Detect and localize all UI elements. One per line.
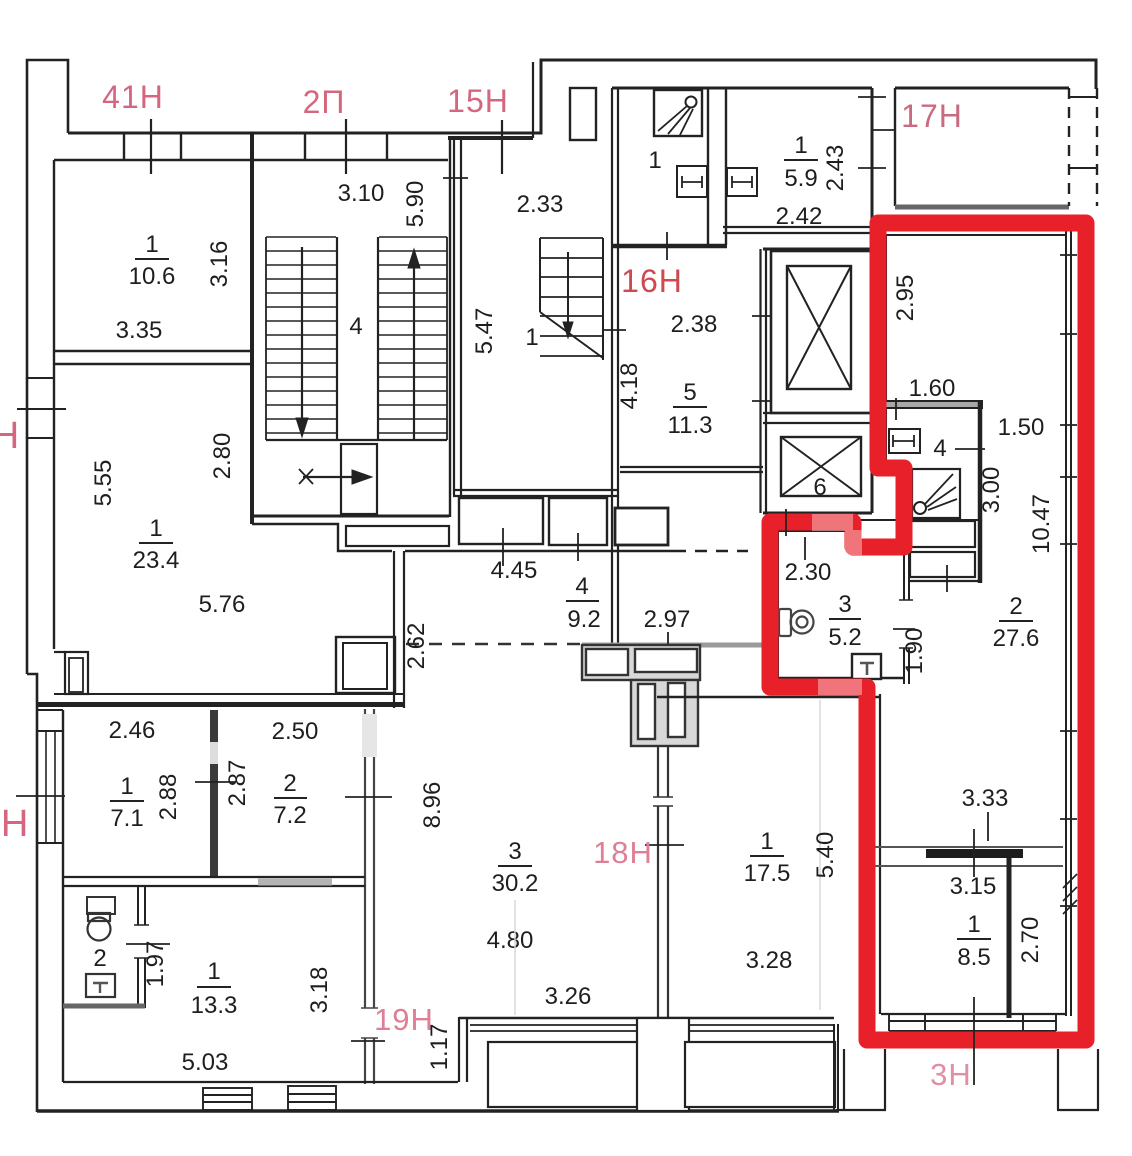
svg-text:1.97: 1.97 <box>142 941 169 988</box>
svg-text:2.50: 2.50 <box>272 718 319 745</box>
svg-text:5.03: 5.03 <box>182 1049 229 1076</box>
svg-text:10.47: 10.47 <box>1028 494 1055 554</box>
svg-text:13.3: 13.3 <box>191 992 238 1019</box>
svg-text:30.2: 30.2 <box>492 870 539 897</box>
svg-text:3.15: 3.15 <box>950 873 997 900</box>
svg-text:2П: 2П <box>303 84 346 120</box>
svg-text:11.3: 11.3 <box>668 412 713 439</box>
svg-text:2: 2 <box>93 945 106 972</box>
svg-text:1.90: 1.90 <box>901 628 928 675</box>
svg-text:1: 1 <box>525 324 538 351</box>
svg-text:5: 5 <box>683 379 696 406</box>
svg-text:2.42: 2.42 <box>776 203 823 230</box>
svg-text:5.9: 5.9 <box>784 165 817 192</box>
svg-text:2.70: 2.70 <box>1017 917 1044 964</box>
svg-text:4: 4 <box>575 573 588 600</box>
svg-text:3.35: 3.35 <box>116 317 163 344</box>
svg-text:2.38: 2.38 <box>671 311 718 338</box>
svg-text:8.5: 8.5 <box>957 944 990 971</box>
svg-text:1: 1 <box>149 515 162 542</box>
svg-text:2.30: 2.30 <box>785 559 832 586</box>
svg-text:41Н: 41Н <box>102 79 164 115</box>
svg-text:3.26: 3.26 <box>545 983 592 1010</box>
svg-text:6: 6 <box>813 474 826 501</box>
svg-text:17Н: 17Н <box>901 98 963 134</box>
svg-text:4: 4 <box>349 313 362 340</box>
svg-text:16Н: 16Н <box>621 263 683 299</box>
svg-text:27.6: 27.6 <box>993 625 1040 652</box>
svg-text:23.4: 23.4 <box>133 547 180 574</box>
svg-text:3Н: 3Н <box>930 1057 972 1092</box>
svg-text:1: 1 <box>794 132 807 159</box>
svg-text:1: 1 <box>145 231 158 258</box>
svg-text:3: 3 <box>508 838 521 865</box>
svg-text:4.18: 4.18 <box>616 363 643 410</box>
svg-text:2.95: 2.95 <box>892 275 919 322</box>
svg-text:2.46: 2.46 <box>109 717 156 744</box>
svg-text:1.60: 1.60 <box>909 375 956 402</box>
svg-text:1: 1 <box>207 958 220 985</box>
svg-text:2: 2 <box>283 770 296 797</box>
svg-text:10.6: 10.6 <box>129 263 176 290</box>
svg-text:0Н: 0Н <box>0 803 29 845</box>
svg-text:1: 1 <box>967 911 980 938</box>
svg-text:5.55: 5.55 <box>90 460 117 507</box>
svg-text:2.62: 2.62 <box>403 623 430 670</box>
svg-text:Н: Н <box>0 415 20 457</box>
svg-text:1: 1 <box>760 828 773 855</box>
svg-text:2.33: 2.33 <box>517 191 564 218</box>
svg-text:5.76: 5.76 <box>199 591 246 618</box>
svg-text:2.87: 2.87 <box>224 760 251 807</box>
svg-text:1: 1 <box>648 147 661 174</box>
svg-text:18Н: 18Н <box>593 835 653 870</box>
svg-text:5.90: 5.90 <box>402 181 429 228</box>
svg-text:3.28: 3.28 <box>746 947 793 974</box>
svg-text:3.00: 3.00 <box>978 467 1005 514</box>
svg-text:3: 3 <box>838 591 851 618</box>
svg-text:4.80: 4.80 <box>487 927 534 954</box>
svg-text:3.18: 3.18 <box>306 967 333 1014</box>
svg-text:7.1: 7.1 <box>110 805 143 832</box>
svg-text:1: 1 <box>120 773 133 800</box>
svg-text:2: 2 <box>1009 593 1022 620</box>
svg-text:4.45: 4.45 <box>491 557 538 584</box>
svg-text:3.16: 3.16 <box>206 241 233 288</box>
svg-text:19Н: 19Н <box>374 1002 434 1037</box>
svg-text:17.5: 17.5 <box>744 860 791 887</box>
svg-text:4: 4 <box>933 435 946 462</box>
svg-text:8.96: 8.96 <box>419 782 446 829</box>
svg-text:7.2: 7.2 <box>273 802 306 829</box>
svg-text:2.88: 2.88 <box>155 774 182 821</box>
svg-text:2.97: 2.97 <box>644 606 691 633</box>
svg-text:2.80: 2.80 <box>209 433 236 480</box>
svg-text:3.10: 3.10 <box>338 180 385 207</box>
svg-text:2.43: 2.43 <box>822 145 849 192</box>
svg-text:5.40: 5.40 <box>812 832 839 879</box>
svg-text:5.47: 5.47 <box>471 308 498 355</box>
svg-text:1.50: 1.50 <box>998 414 1045 441</box>
svg-text:15Н: 15Н <box>447 83 509 119</box>
svg-text:5.2: 5.2 <box>828 624 861 651</box>
svg-text:3.33: 3.33 <box>962 785 1009 812</box>
svg-text:9.2: 9.2 <box>567 606 600 633</box>
